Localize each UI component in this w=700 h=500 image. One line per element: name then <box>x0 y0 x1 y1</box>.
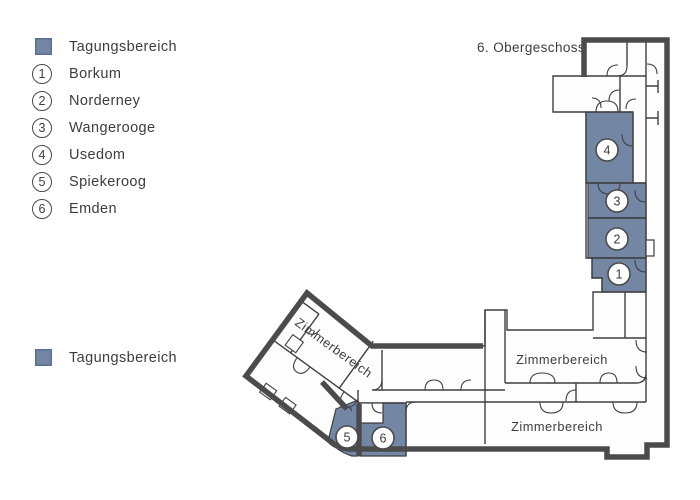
area-label-upper: Zimmerbereich <box>516 352 608 367</box>
area-label-lower: Zimmerbereich <box>511 419 603 434</box>
svg-text:4: 4 <box>604 144 611 158</box>
room-marker-5: 5 <box>336 426 358 448</box>
room-marker-6: 6 <box>372 427 394 449</box>
exterior-walls-thin <box>483 76 602 346</box>
svg-text:1: 1 <box>616 268 623 282</box>
duct-box <box>646 240 654 256</box>
floor-plan: Zimmerbereich Zimmerbereich Zimmerbereic… <box>0 0 700 500</box>
room-marker-4: 4 <box>596 139 618 161</box>
room-marker-1: 1 <box>608 263 630 285</box>
room-marker-2: 2 <box>606 228 628 250</box>
room-marker-3: 3 <box>606 190 628 212</box>
svg-text:3: 3 <box>614 195 621 209</box>
svg-text:5: 5 <box>344 431 351 445</box>
svg-text:6: 6 <box>380 432 387 446</box>
svg-text:2: 2 <box>614 233 621 247</box>
